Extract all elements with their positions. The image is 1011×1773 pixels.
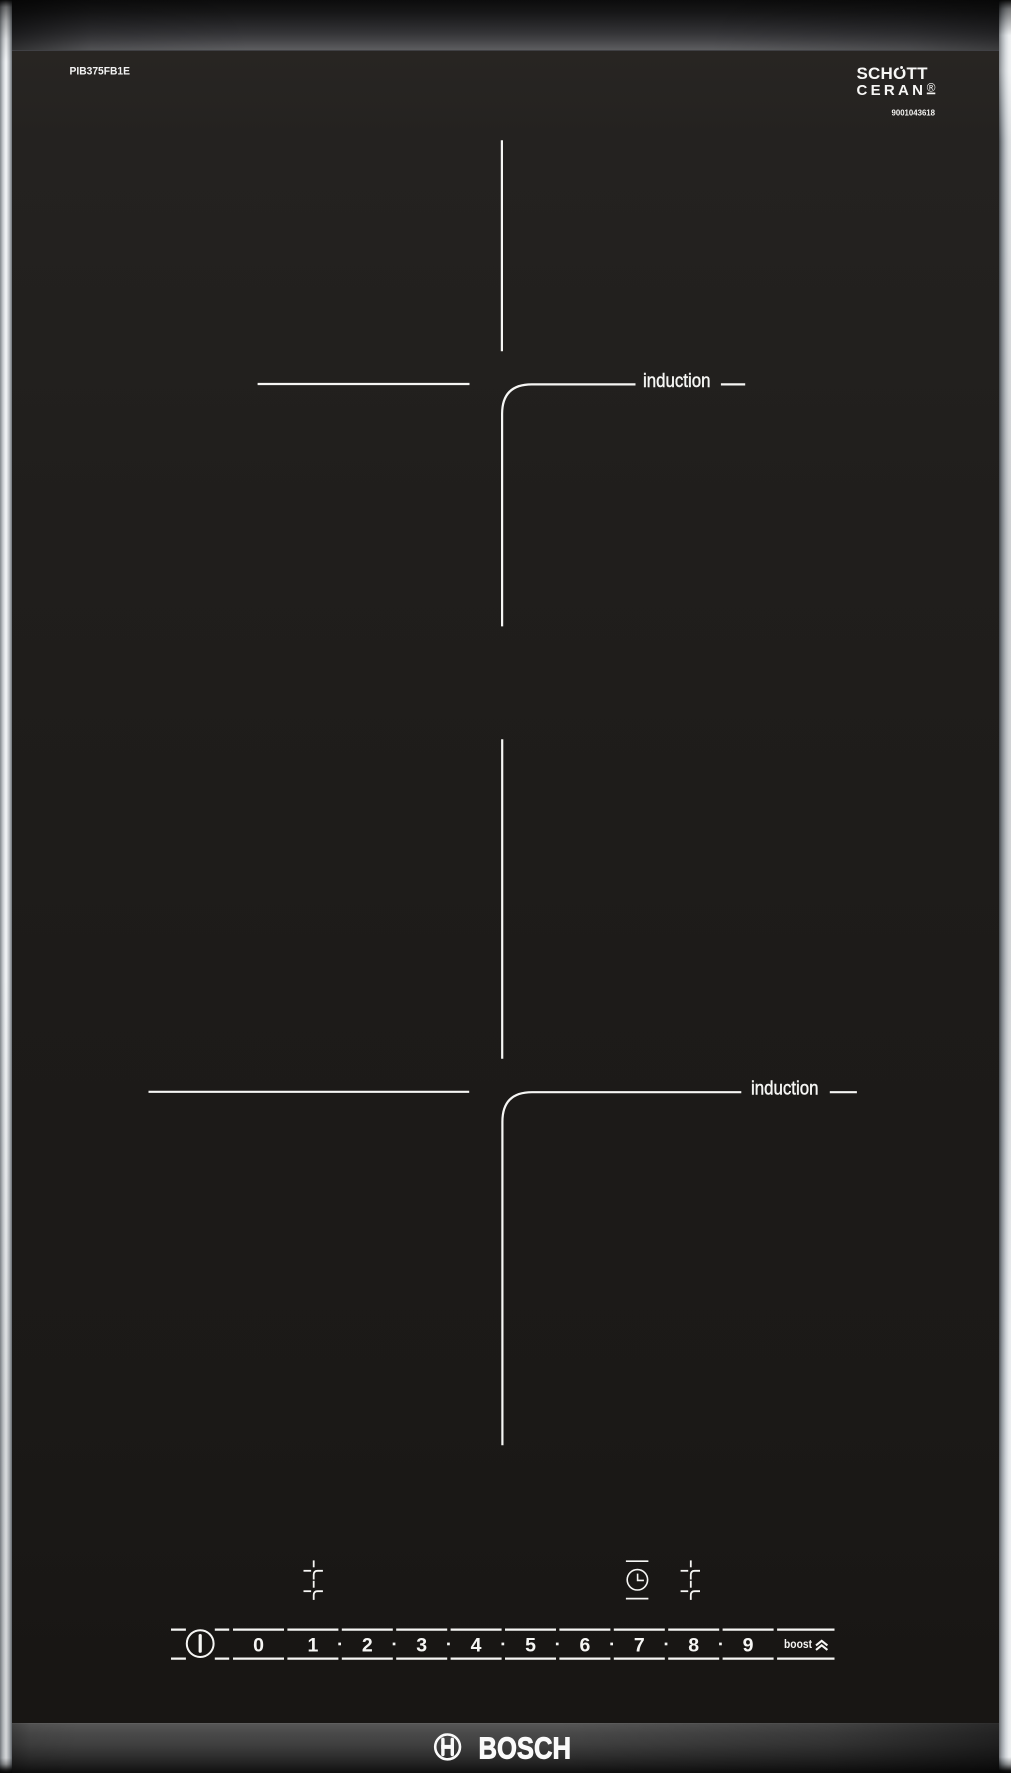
svg-text:induction: induction [643, 370, 711, 392]
svg-text:3: 3 [416, 1634, 427, 1656]
svg-text:1: 1 [307, 1634, 318, 1656]
svg-text:2: 2 [362, 1634, 373, 1656]
svg-text:9: 9 [743, 1634, 754, 1656]
svg-text:BOSCH: BOSCH [479, 1732, 572, 1765]
svg-text:boost: boost [784, 1639, 812, 1651]
svg-text:induction: induction [751, 1078, 819, 1100]
svg-text:0: 0 [253, 1634, 264, 1656]
svg-text:9001043618: 9001043618 [892, 108, 936, 118]
svg-text:6: 6 [579, 1634, 590, 1656]
svg-text:CERAN: CERAN [857, 82, 924, 99]
svg-text:SCHOTT: SCHOTT [857, 64, 929, 83]
svg-text:®: ® [927, 81, 936, 95]
svg-text:PIB375FB1E: PIB375FB1E [70, 66, 131, 78]
svg-text:7: 7 [634, 1634, 645, 1656]
svg-text:5: 5 [525, 1634, 536, 1656]
svg-text:8: 8 [688, 1634, 699, 1656]
svg-text:4: 4 [471, 1634, 482, 1656]
